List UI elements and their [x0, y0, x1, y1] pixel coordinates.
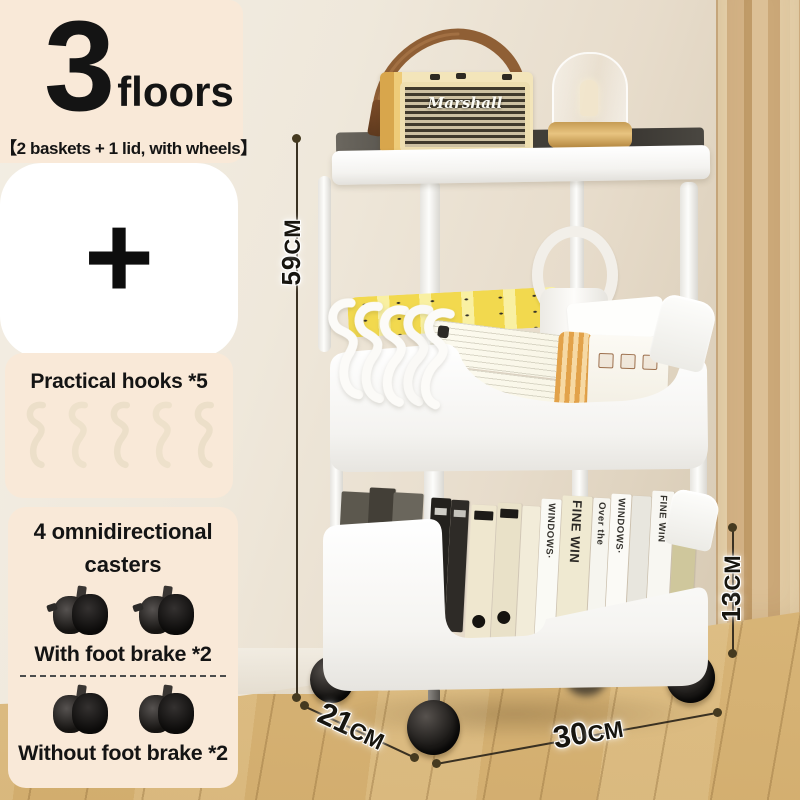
s-hook-icon: [59, 400, 95, 470]
casters-info-panel: 4 omnidirectional casters With foot brak…: [8, 507, 238, 788]
dimension-dot: [728, 523, 737, 532]
caster-wheel: [407, 700, 460, 755]
caster-icon: [51, 586, 109, 638]
speaker-knob: [430, 74, 440, 80]
bottom-basket: [315, 495, 715, 700]
dimension-dot: [300, 701, 309, 710]
dimension-dot: [292, 693, 301, 702]
curtain: [716, 0, 800, 648]
included-items-subtitle: 【2 baskets + 1 lid, with wheels】: [0, 134, 243, 159]
dimension-dot: [292, 134, 301, 143]
cart-top-tray: [332, 145, 710, 185]
s-hook-icon: [101, 400, 137, 470]
basket-height-dimension-label: 13CM: [718, 554, 744, 621]
dimension-dot: [432, 759, 441, 768]
dimension-dot: [410, 753, 419, 762]
without-brake-caption: Without foot brake *2: [8, 741, 238, 766]
glass-dome-lamp: [548, 52, 632, 148]
floors-number: 3: [44, 16, 111, 118]
s-hook-icon: [143, 400, 179, 470]
caster-icon: [137, 685, 195, 737]
speaker-knob: [502, 74, 512, 80]
hooks-title: Practical hooks *5: [5, 370, 233, 394]
hooks-row: [5, 400, 233, 470]
floors-headline: 3 floors: [0, 0, 243, 118]
height-dimension-label: 59CM: [278, 218, 304, 285]
caster-icon: [137, 586, 195, 638]
speaker-grille: [400, 82, 530, 152]
plus-icon: +: [84, 197, 154, 317]
floors-info-panel: 3 floors 【2 baskets + 1 lid, with wheels…: [0, 0, 243, 163]
plain-casters-row: [8, 685, 238, 739]
lamp-base: [548, 122, 632, 148]
s-hook-icon: [185, 400, 221, 470]
dimension-dot: [713, 708, 722, 717]
lamp-bulb: [580, 80, 598, 116]
casters-title-line1: 4 omnidirectional: [8, 519, 238, 545]
brake-casters-row: [8, 586, 238, 640]
floors-word: floors: [117, 68, 234, 116]
casters-title-line2: casters: [8, 552, 238, 578]
dashed-divider: [20, 675, 226, 677]
plus-panel: +: [0, 163, 238, 358]
with-brake-caption: With foot brake *2: [8, 642, 238, 667]
hooks-info-panel: Practical hooks *5: [5, 353, 233, 498]
speaker-brand-logo: Marshall: [400, 94, 530, 112]
dimension-dot: [728, 649, 737, 658]
product-promo-image: Marshall WI: [0, 0, 800, 800]
marshall-speaker: Marshall: [368, 36, 533, 154]
s-hook-icon: [17, 400, 53, 470]
speaker-knob: [456, 73, 466, 79]
caster-icon: [51, 685, 109, 737]
